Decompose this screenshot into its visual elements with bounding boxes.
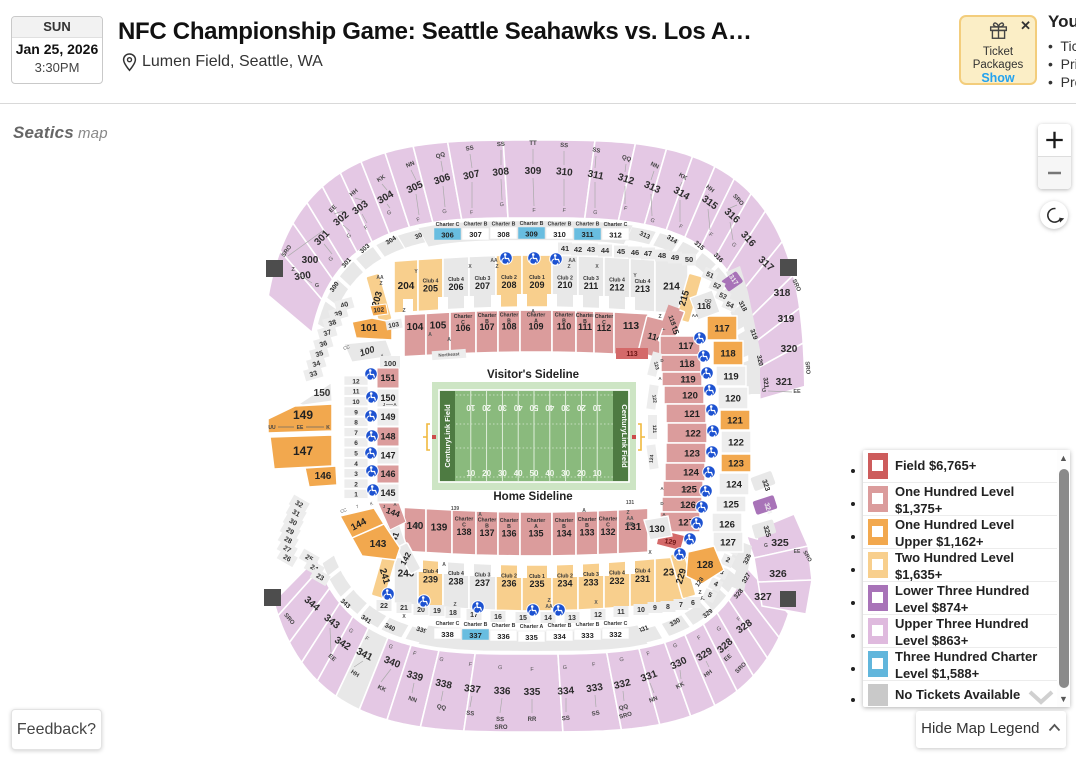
svg-text:Charter B: Charter B (576, 222, 600, 228)
svg-text:CC: CC (340, 507, 349, 514)
svg-text:321: 321 (776, 377, 793, 388)
svg-text:Visitor's Sideline: Visitor's Sideline (487, 369, 579, 381)
svg-text:232: 232 (609, 576, 624, 586)
svg-text:327: 327 (754, 591, 772, 603)
svg-text:47: 47 (644, 249, 652, 258)
svg-text:100: 100 (384, 359, 397, 368)
svg-text:8: 8 (666, 604, 670, 611)
svg-text:121: 121 (727, 416, 744, 427)
svg-text:150: 150 (314, 388, 331, 399)
svg-text:122: 122 (650, 394, 657, 403)
svg-text:CenturyLink Field: CenturyLink Field (443, 404, 452, 468)
svg-text:9: 9 (354, 409, 358, 416)
svg-text:SS: SS (497, 142, 505, 149)
svg-text:310: 310 (553, 230, 566, 239)
svg-text:4: 4 (354, 461, 358, 468)
svg-text:123: 123 (728, 459, 744, 470)
svg-text:208: 208 (501, 280, 516, 290)
svg-text:332: 332 (609, 630, 622, 639)
svg-text:16: 16 (494, 614, 502, 621)
svg-text:139: 139 (431, 522, 448, 533)
svg-text:12: 12 (594, 612, 602, 619)
svg-text:Charter B: Charter B (464, 622, 488, 628)
svg-text:212: 212 (609, 282, 624, 292)
svg-text:146: 146 (380, 469, 395, 479)
svg-text:X: X (402, 614, 406, 620)
svg-text:A: A (447, 337, 451, 343)
svg-text:10: 10 (352, 399, 360, 406)
svg-text:G: G (762, 388, 766, 394)
svg-text:309: 309 (525, 230, 538, 239)
svg-text:G: G (563, 665, 568, 671)
svg-text:30: 30 (561, 403, 570, 412)
svg-text:G: G (764, 543, 768, 549)
svg-text:312: 312 (609, 231, 622, 240)
svg-text:149: 149 (293, 408, 313, 422)
svg-text:338: 338 (441, 630, 454, 639)
svg-text:19: 19 (433, 608, 441, 615)
svg-text:30: 30 (498, 469, 507, 478)
svg-text:20: 20 (482, 403, 491, 412)
svg-text:Charter C: Charter C (436, 621, 460, 627)
svg-text:K: K (326, 425, 330, 431)
svg-text:122: 122 (685, 429, 701, 440)
svg-text:A: A (531, 309, 535, 315)
svg-text:12: 12 (352, 378, 360, 385)
svg-text:20: 20 (576, 403, 585, 412)
svg-text:42: 42 (574, 245, 582, 254)
svg-text:AA: AA (545, 604, 553, 610)
svg-text:109: 109 (528, 321, 543, 331)
svg-text:132: 132 (600, 527, 615, 537)
svg-text:334: 334 (553, 632, 566, 641)
svg-text:326: 326 (769, 568, 787, 580)
svg-text:138: 138 (456, 527, 471, 537)
svg-text:RR: RR (528, 717, 537, 723)
svg-text:Charter B: Charter B (520, 221, 544, 227)
svg-text:233: 233 (583, 577, 598, 587)
svg-text:EE: EE (297, 425, 304, 431)
svg-text:101: 101 (361, 323, 378, 334)
svg-text:Z: Z (547, 598, 550, 604)
svg-text:309: 309 (525, 166, 542, 177)
svg-text:335: 335 (524, 687, 541, 698)
svg-text:11: 11 (353, 389, 360, 396)
svg-text:113: 113 (626, 351, 637, 358)
svg-text:50: 50 (529, 403, 538, 412)
svg-text:Z: Z (658, 314, 661, 320)
svg-text:30: 30 (561, 469, 570, 478)
svg-text:124: 124 (649, 454, 656, 463)
svg-text:Home Sideline: Home Sideline (493, 491, 572, 503)
svg-text:211: 211 (584, 281, 599, 291)
svg-text:7: 7 (355, 504, 360, 510)
svg-text:139: 139 (451, 506, 460, 512)
svg-text:10: 10 (466, 403, 475, 412)
svg-text:125: 125 (723, 500, 740, 511)
svg-text:125: 125 (681, 485, 698, 496)
svg-text:308: 308 (492, 166, 510, 179)
svg-text:A: A (428, 332, 432, 338)
svg-text:CenturyLink Field: CenturyLink Field (620, 404, 629, 468)
svg-text:48: 48 (658, 251, 666, 260)
svg-text:10: 10 (592, 403, 601, 412)
svg-text:X: X (648, 550, 652, 556)
svg-text:205: 205 (423, 283, 438, 293)
svg-text:6: 6 (354, 440, 358, 447)
svg-text:10: 10 (593, 469, 602, 478)
svg-text:40: 40 (545, 469, 554, 478)
svg-text:128: 128 (697, 560, 714, 571)
svg-text:18: 18 (449, 610, 457, 617)
svg-text:239: 239 (423, 574, 438, 584)
svg-text:135: 135 (528, 529, 543, 539)
svg-text:44: 44 (601, 246, 610, 255)
svg-text:1: 1 (354, 492, 358, 499)
svg-text:Z: Z (379, 281, 382, 287)
svg-text:46: 46 (631, 248, 639, 257)
svg-text:105: 105 (430, 321, 447, 332)
svg-text:300: 300 (302, 255, 319, 266)
svg-text:Z: Z (685, 486, 688, 491)
svg-text:133: 133 (579, 528, 594, 538)
svg-text:43: 43 (587, 245, 595, 254)
svg-text:41: 41 (561, 244, 569, 253)
svg-text:136: 136 (501, 528, 516, 538)
svg-text:BB: BB (626, 522, 634, 528)
svg-text:207: 207 (475, 281, 490, 291)
svg-text:111: 111 (578, 322, 592, 332)
svg-text:TT: TT (529, 141, 537, 147)
svg-text:118: 118 (720, 349, 735, 360)
svg-text:Z: Z (402, 308, 405, 314)
svg-text:231: 231 (635, 574, 650, 584)
svg-text:14: 14 (544, 615, 552, 622)
svg-text:137: 137 (479, 528, 494, 538)
svg-text:49: 49 (671, 253, 679, 262)
svg-text:A: A (442, 562, 446, 568)
svg-text:Charter B: Charter B (548, 221, 572, 227)
svg-text:Charter C: Charter C (436, 222, 460, 228)
svg-text:149: 149 (380, 412, 395, 422)
svg-text:319: 319 (778, 314, 795, 325)
svg-text:131: 131 (626, 500, 635, 506)
svg-text:124: 124 (683, 468, 700, 479)
svg-text:SRO: SRO (494, 725, 507, 731)
svg-text:21: 21 (400, 605, 408, 612)
svg-text:213: 213 (635, 284, 650, 294)
svg-text:120: 120 (725, 394, 741, 405)
svg-text:104: 104 (407, 322, 424, 333)
svg-text:A: A (478, 512, 482, 518)
svg-text:209: 209 (529, 280, 544, 290)
svg-text:140: 140 (407, 521, 424, 532)
svg-text:Charter C: Charter C (604, 621, 628, 627)
svg-text:127: 127 (720, 538, 736, 549)
svg-text:G: G (315, 283, 319, 289)
svg-text:Z: Z (495, 264, 498, 270)
svg-text:147: 147 (380, 451, 395, 461)
svg-text:108: 108 (501, 322, 516, 332)
svg-text:Charter C: Charter C (604, 222, 628, 228)
svg-text:50: 50 (530, 469, 539, 478)
svg-text:146: 146 (315, 471, 332, 482)
svg-text:K: K (369, 501, 374, 507)
svg-text:117: 117 (714, 324, 729, 335)
svg-text:22: 22 (380, 603, 388, 610)
svg-text:AA: AA (692, 313, 699, 318)
svg-text:143: 143 (370, 539, 387, 550)
svg-text:335: 335 (525, 633, 538, 642)
svg-text:126: 126 (719, 520, 735, 531)
svg-text:106: 106 (455, 323, 470, 333)
svg-text:40: 40 (514, 469, 523, 478)
svg-text:110: 110 (557, 322, 572, 332)
svg-text:119: 119 (723, 372, 738, 383)
svg-text:311: 311 (581, 230, 593, 239)
svg-text:210: 210 (557, 280, 572, 290)
svg-text:121: 121 (684, 409, 701, 420)
svg-text:204: 204 (398, 281, 415, 292)
svg-text:334: 334 (557, 685, 575, 697)
svg-text:134: 134 (556, 528, 571, 538)
svg-text:13: 13 (568, 615, 576, 622)
svg-text:306: 306 (441, 231, 454, 240)
svg-text:2: 2 (354, 481, 358, 488)
svg-text:Charter B: Charter B (492, 221, 516, 227)
svg-text:151: 151 (380, 373, 395, 383)
svg-text:214: 214 (663, 282, 680, 293)
svg-text:Z: Z (567, 264, 570, 270)
svg-text:325: 325 (771, 537, 789, 549)
svg-text:Charter A: Charter A (520, 624, 544, 630)
svg-text:UU: UU (268, 425, 276, 431)
svg-text:318: 318 (774, 288, 791, 299)
svg-text:SS: SS (562, 716, 571, 723)
svg-text:Charter B: Charter B (464, 222, 488, 228)
svg-text:SS: SS (496, 717, 504, 723)
svg-text:103: 103 (388, 321, 400, 330)
svg-text:130: 130 (649, 524, 665, 535)
svg-text:337: 337 (469, 631, 482, 640)
svg-text:336: 336 (497, 632, 510, 641)
svg-text:113: 113 (623, 321, 640, 332)
svg-text:310: 310 (555, 166, 573, 179)
svg-text:124: 124 (726, 480, 743, 491)
svg-text:40: 40 (545, 403, 554, 412)
svg-text:307: 307 (469, 230, 482, 239)
svg-text:Z: Z (683, 504, 686, 509)
svg-text:120: 120 (682, 391, 698, 402)
svg-text:320: 320 (781, 344, 798, 355)
svg-text:238: 238 (448, 576, 463, 586)
svg-text:SS: SS (560, 143, 569, 150)
svg-text:7: 7 (354, 430, 358, 437)
svg-text:336: 336 (494, 686, 512, 698)
svg-text:G: G (498, 665, 503, 671)
svg-text:147: 147 (293, 444, 313, 458)
svg-text:8: 8 (354, 420, 358, 427)
svg-text:206: 206 (448, 282, 463, 292)
svg-text:EE: EE (794, 549, 801, 555)
svg-text:50: 50 (685, 255, 693, 264)
svg-text:SRO: SRO (803, 361, 810, 375)
svg-text:117: 117 (678, 341, 693, 352)
svg-text:45: 45 (617, 247, 625, 256)
svg-text:234: 234 (557, 579, 572, 589)
svg-text:237: 237 (475, 578, 490, 588)
svg-text:Z: Z (685, 358, 688, 363)
svg-text:321: 321 (761, 377, 769, 389)
svg-text:Charter B: Charter B (492, 623, 516, 629)
svg-text:6: 6 (691, 600, 695, 607)
svg-text:148: 148 (380, 432, 395, 442)
svg-text:15: 15 (519, 615, 527, 622)
svg-text:10: 10 (637, 607, 645, 614)
svg-text:EE: EE (793, 389, 801, 395)
svg-text:236: 236 (501, 579, 516, 589)
svg-text:11: 11 (617, 609, 625, 616)
svg-text:20: 20 (482, 469, 491, 478)
svg-text:A: A (582, 508, 586, 514)
svg-text:308: 308 (497, 230, 510, 239)
svg-text:Z: Z (683, 376, 686, 381)
svg-text:SS: SS (466, 710, 475, 717)
svg-text:20: 20 (577, 469, 586, 478)
svg-text:121: 121 (651, 425, 657, 434)
svg-text:123: 123 (684, 449, 700, 460)
svg-text:9: 9 (653, 605, 657, 612)
svg-text:G: G (499, 202, 504, 208)
svg-text:333: 333 (581, 631, 594, 640)
svg-text:7: 7 (679, 602, 683, 609)
svg-text:40: 40 (513, 403, 522, 412)
svg-text:30: 30 (497, 403, 506, 412)
svg-text:102: 102 (373, 307, 385, 315)
svg-text:145: 145 (380, 488, 395, 498)
svg-text:337: 337 (463, 683, 481, 696)
svg-text:3: 3 (354, 471, 358, 478)
svg-text:20: 20 (417, 607, 425, 614)
svg-text:QQ: QQ (704, 298, 712, 303)
svg-text:112: 112 (597, 323, 612, 333)
svg-text:235: 235 (529, 579, 544, 589)
svg-text:122: 122 (728, 438, 744, 449)
svg-text:Charter B: Charter B (548, 623, 572, 629)
svg-text:10: 10 (466, 469, 475, 478)
svg-text:107: 107 (479, 322, 494, 332)
svg-text:5: 5 (354, 451, 358, 458)
